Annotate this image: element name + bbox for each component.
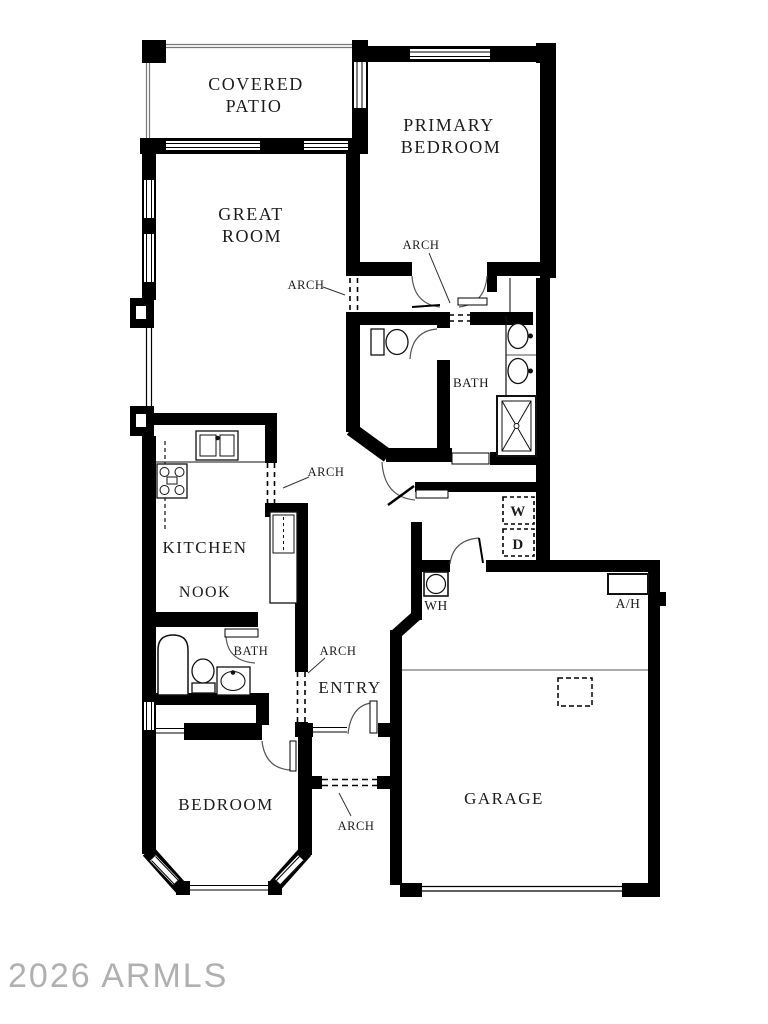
sink-icon-hall [217,667,250,695]
covered-patio-label-line2: PATIO [226,96,283,116]
arch-label-3: ARCH [308,465,345,479]
floor-plan-page: COVERED PATIO PRIMARY BEDROOM GREAT ROOM… [0,0,768,1024]
floor-plan-drawing: COVERED PATIO PRIMARY BEDROOM GREAT ROOM… [0,0,768,1024]
entry-label: ENTRY [318,678,381,697]
covered-patio-label-line1: COVERED [208,74,304,94]
primary-bedroom-label-line2: BEDROOM [401,137,502,157]
arch-label-2: ARCH [403,238,440,252]
kitchen-counter [270,512,297,603]
primary-bath-label: BATH [453,375,489,390]
arch-label-4: ARCH [320,644,357,658]
toilet-icon-hall [192,659,215,693]
air-handler-label: A/H [616,596,641,611]
armls-watermark: 2026 ARMLS [8,957,228,995]
great-room-label-line2: ROOM [222,226,282,246]
primary-bedroom-label-line1: PRIMARY [403,115,495,135]
nook-label: NOOK [179,584,231,601]
water-heater-icon [424,572,448,596]
water-heater-label: WH [424,598,448,613]
garage-details [402,670,648,706]
shower-icon [497,396,536,456]
vanity-sinks-icon [506,316,536,396]
washer-label: W [510,504,526,520]
hall-bath-label: BATH [234,644,269,658]
walls [130,40,666,897]
bedroom-label: BEDROOM [178,795,274,814]
great-room-label-line1: GREAT [218,204,284,224]
air-handler-box [608,574,648,594]
attic-access-box [558,678,592,706]
dryer-label: D [512,537,523,553]
garage-label: GARAGE [464,789,544,808]
arch-label-1: ARCH [288,278,325,292]
kitchen-label: KITCHEN [162,538,247,557]
toilet-icon-primary [371,329,408,355]
tub-icon [158,635,188,695]
kitchen-sink-icon [196,431,238,460]
arch-label-5: ARCH [338,819,375,833]
